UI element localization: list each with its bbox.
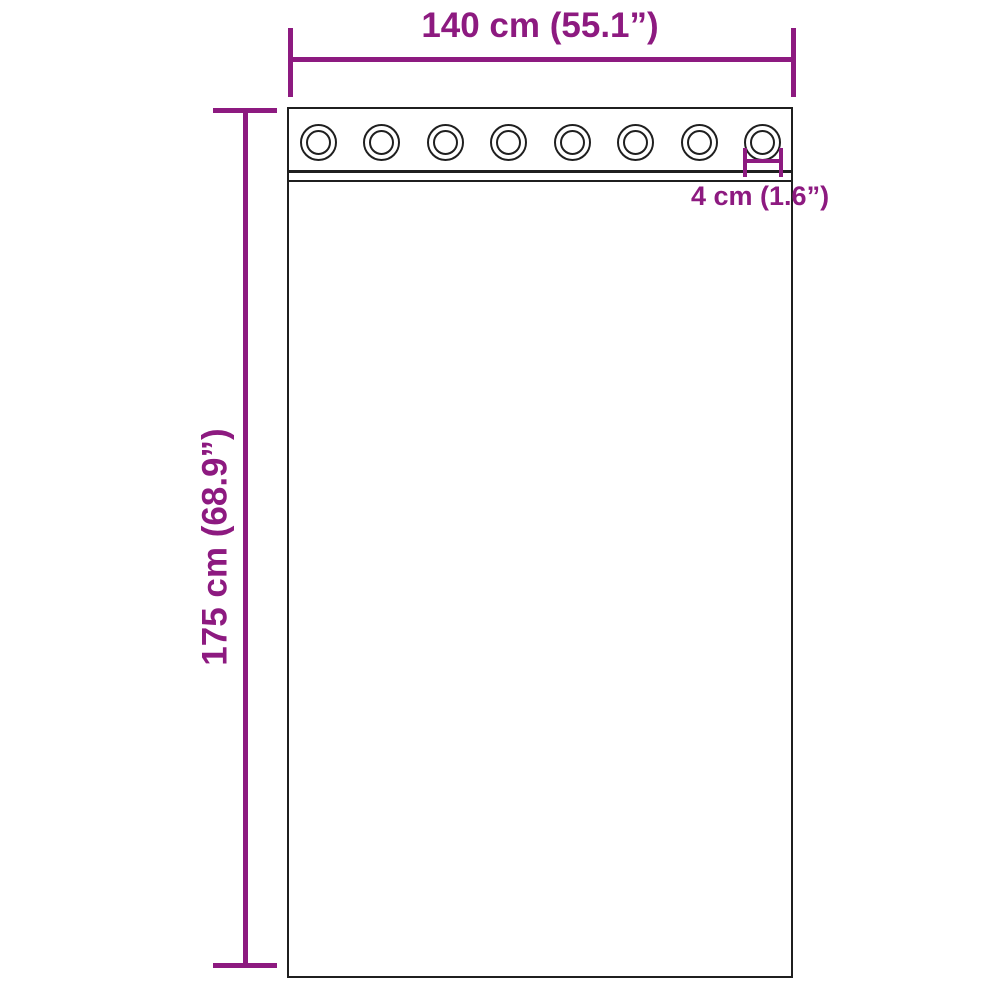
height-dimension-tick-top <box>213 108 277 113</box>
grommet-hole <box>687 130 712 155</box>
grommet <box>617 124 654 161</box>
grommet <box>490 124 527 161</box>
grommet-hole <box>560 130 585 155</box>
grommet-dimension-label: 4 cm (1.6”) <box>691 183 829 210</box>
grommet <box>363 124 400 161</box>
dimension-diagram: 140 cm (55.1”) 175 cm (68.9”) 4 cm (1.6”… <box>0 0 1000 1000</box>
grommet-hole <box>433 130 458 155</box>
grommet-hole <box>750 130 775 155</box>
height-dimension-line <box>243 111 248 966</box>
curtain-outline <box>287 107 793 978</box>
grommet <box>427 124 464 161</box>
grommet-hole <box>306 130 331 155</box>
height-dimension-label: 175 cm (68.9”) <box>198 428 233 665</box>
grommet <box>744 124 781 161</box>
grommet-hole <box>369 130 394 155</box>
grommet-hole <box>496 130 521 155</box>
grommet <box>681 124 718 161</box>
grommet-band-seam-line <box>287 170 793 173</box>
grommet-dimension-bar <box>743 159 783 163</box>
height-dimension-tick-bottom <box>213 963 277 968</box>
grommet-hole <box>623 130 648 155</box>
width-dimension-label: 140 cm (55.1”) <box>287 8 793 43</box>
grommet <box>300 124 337 161</box>
grommet <box>554 124 591 161</box>
width-dimension-line <box>290 57 794 62</box>
